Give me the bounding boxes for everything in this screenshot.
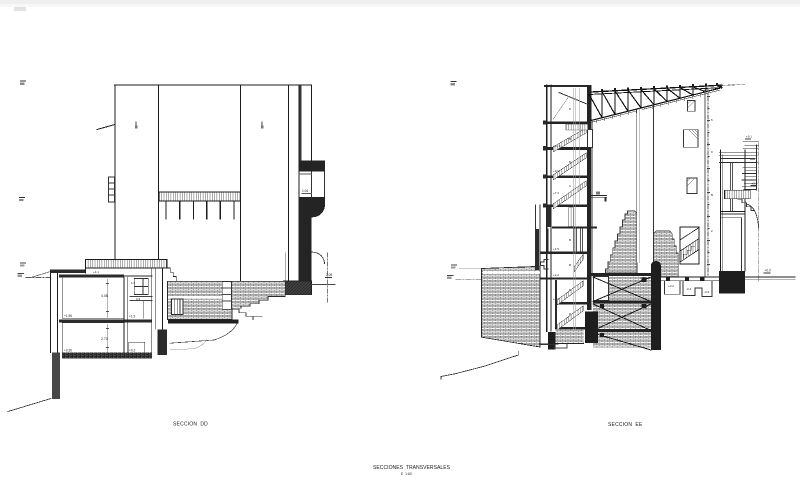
svg-text:+11.9: +11.9 [553,144,561,148]
svg-text:B: B [569,238,571,242]
svg-text:1.2: 1.2 [131,281,136,285]
svg-text:SECCION EE: SECCION EE [608,422,643,428]
svg-text:+9.6: +9.6 [553,169,559,173]
svg-text:E 1:60: E 1:60 [401,472,412,476]
svg-text:B: B [569,263,571,267]
svg-text:+2.2: +2.2 [553,273,559,277]
svg-text:SECCIONES TRANSVERSALES: SECCIONES TRANSVERSALES [373,465,451,471]
svg-text:B: B [569,160,571,164]
svg-text:-0.4: -0.4 [686,287,692,291]
svg-text:B: B [569,137,571,141]
svg-text:+0.4: +0.4 [553,297,559,301]
svg-text:-0.9: -0.9 [704,290,710,294]
svg-text:+1.96: +1.96 [64,314,72,318]
svg-text:+0.3: +0.3 [129,349,136,353]
svg-text:+0.0: +0.0 [765,269,772,273]
svg-text:+9.1: +9.1 [746,135,752,139]
svg-text:+4.5: +4.5 [553,247,559,251]
svg-text:0.9: 0.9 [136,297,141,301]
svg-text:+14.2: +14.2 [553,121,561,125]
svg-text:1.04: 1.04 [302,189,308,193]
svg-text:2.08: 2.08 [326,273,332,277]
svg-text:SECCION DD: SECCION DD [173,422,208,428]
svg-text:B: B [711,193,713,197]
svg-text:+7.3: +7.3 [553,191,559,195]
svg-text:+1.9: +1.9 [129,315,136,319]
svg-text:+0.2: +0.2 [668,284,674,288]
svg-text:+3.9: +3.9 [752,181,758,185]
svg-text:2.70: 2.70 [101,337,108,341]
svg-text:+0.30: +0.30 [64,349,72,353]
svg-text:4.08: 4.08 [101,294,108,298]
svg-text:+4.1: +4.1 [93,270,99,274]
